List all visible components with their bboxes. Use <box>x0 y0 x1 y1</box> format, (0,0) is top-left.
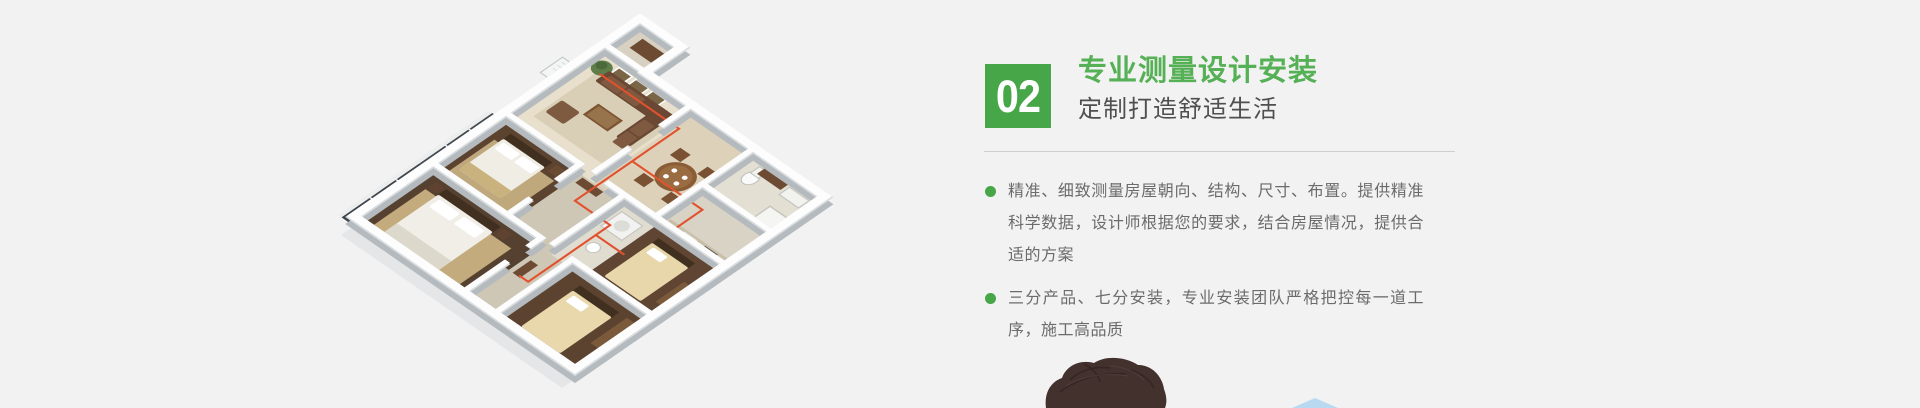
blue-triangle-decor <box>1292 398 1338 408</box>
feature-bullet-list: 精准、细致测量房屋朝向、结构、尺寸、布置。提供精准科学数据，设计师根据您的要求，… <box>985 176 1437 358</box>
page-background: { "page": { "background": "#f2f2f2" }, "… <box>0 0 1920 408</box>
step-number: 02 <box>996 74 1040 119</box>
list-item: 三分产品、七分安装，专业安装团队严格把控每一道工序，施工高品质 <box>985 283 1437 347</box>
floor-plan-illustration <box>330 2 910 402</box>
step-title: 专业测量设计安装 <box>1078 54 1318 89</box>
person-head-photo <box>1040 356 1170 408</box>
step-heading-block: 专业测量设计安装 定制打造舒适生活 <box>1078 54 1318 125</box>
bullet-text: 精准、细致测量房屋朝向、结构、尺寸、布置。提供精准科学数据，设计师根据您的要求，… <box>1008 176 1424 272</box>
step-number-badge: 02 <box>985 64 1051 128</box>
bullet-dot-icon <box>985 186 996 197</box>
floor-plan-floors <box>336 16 861 379</box>
bullet-text: 三分产品、七分安装，专业安装团队严格把控每一道工序，施工高品质 <box>1008 283 1424 347</box>
bullet-dot-icon <box>985 293 996 304</box>
step-subtitle: 定制打造舒适生活 <box>1078 96 1318 125</box>
section-divider <box>984 151 1455 152</box>
list-item: 精准、细致测量房屋朝向、结构、尺寸、布置。提供精准科学数据，设计师根据您的要求，… <box>985 176 1437 272</box>
